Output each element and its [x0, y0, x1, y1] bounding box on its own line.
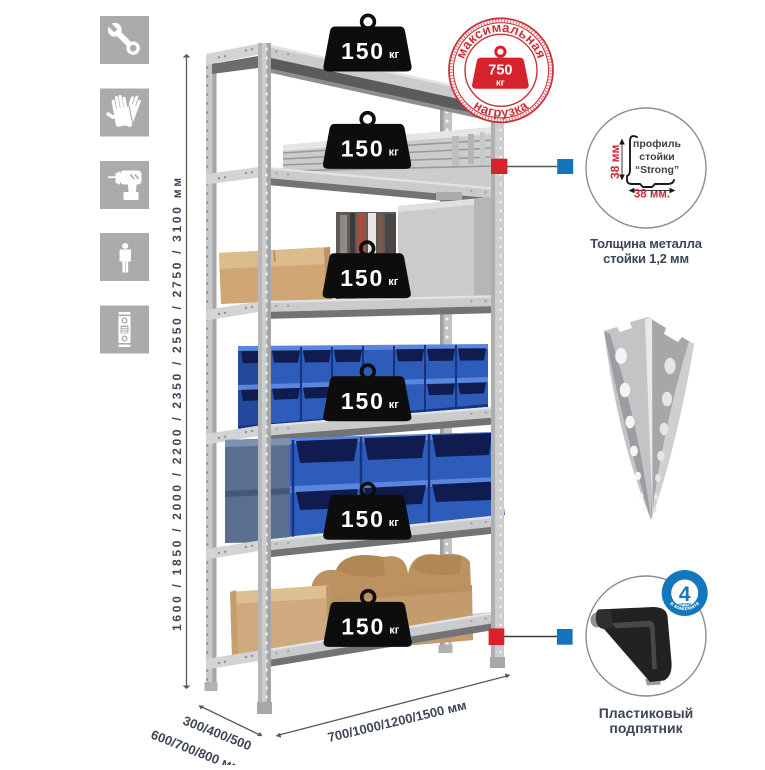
svg-text:38 мм.: 38 мм.	[634, 189, 670, 201]
svg-text:кг: кг	[496, 78, 505, 89]
svg-text:кг: кг	[389, 146, 400, 158]
svg-text:Пластиковый: Пластиковый	[599, 705, 694, 721]
svg-text:стойки 1,2 мм: стойки 1,2 мм	[603, 251, 689, 266]
svg-text:кг: кг	[389, 624, 400, 636]
svg-text:стойки: стойки	[639, 151, 674, 163]
svg-text:150: 150	[341, 388, 385, 414]
svg-text:150: 150	[341, 38, 385, 64]
svg-text:150: 150	[341, 135, 385, 161]
svg-text:кг: кг	[389, 399, 400, 411]
svg-text:Толщина металла: Толщина металла	[590, 236, 703, 251]
svg-text:150: 150	[340, 265, 384, 291]
svg-text:750: 750	[488, 63, 512, 79]
svg-text:кг: кг	[389, 49, 400, 61]
svg-text:150: 150	[341, 506, 385, 532]
svg-text:кг: кг	[389, 517, 400, 529]
svg-text:профиль: профиль	[633, 138, 681, 150]
svg-text:подпятник: подпятник	[609, 720, 683, 736]
svg-text:1600 / 1850 / 2000 / 2200 / 23: 1600 / 1850 / 2000 / 2200 / 2350 / 2550 …	[170, 175, 184, 631]
svg-text:150: 150	[341, 613, 385, 639]
svg-text:“Strong”: “Strong”	[635, 164, 679, 176]
svg-text:кг: кг	[388, 276, 399, 288]
svg-text:38 мм: 38 мм	[608, 144, 622, 179]
